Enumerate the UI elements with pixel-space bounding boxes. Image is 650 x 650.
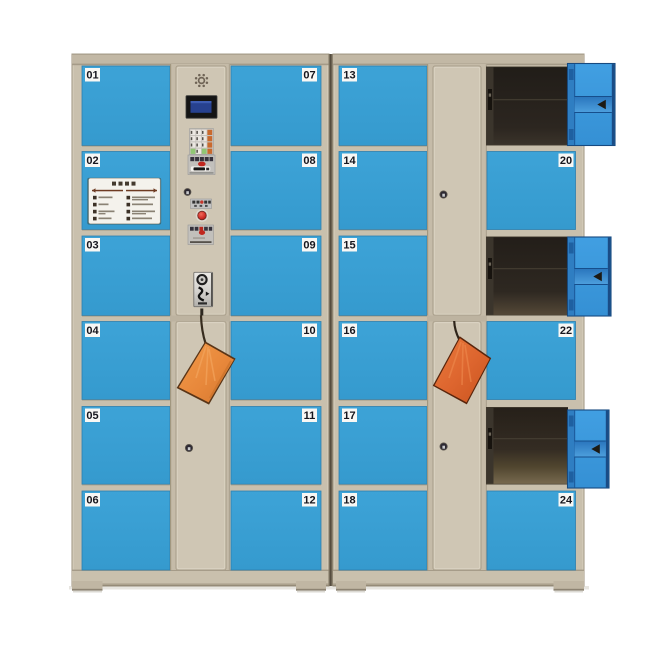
svg-text:16: 16 xyxy=(343,325,355,337)
svg-text:04: 04 xyxy=(86,325,99,337)
svg-text:20: 20 xyxy=(560,155,572,167)
svg-text:15: 15 xyxy=(343,240,355,252)
svg-text:10: 10 xyxy=(303,325,315,337)
svg-text:12: 12 xyxy=(303,495,315,507)
svg-text:06: 06 xyxy=(86,495,98,507)
svg-text:09: 09 xyxy=(303,240,315,252)
svg-text:07: 07 xyxy=(303,70,315,82)
svg-text:02: 02 xyxy=(86,155,98,167)
svg-text:18: 18 xyxy=(343,495,355,507)
svg-text:17: 17 xyxy=(343,410,355,422)
svg-text:24: 24 xyxy=(560,495,573,507)
svg-text:05: 05 xyxy=(86,410,98,422)
svg-text:22: 22 xyxy=(560,325,572,337)
svg-text:13: 13 xyxy=(343,70,355,82)
svg-text:03: 03 xyxy=(86,240,98,252)
svg-text:08: 08 xyxy=(303,155,315,167)
svg-text:11: 11 xyxy=(304,410,316,422)
svg-text:01: 01 xyxy=(86,70,98,82)
svg-text:14: 14 xyxy=(343,155,356,167)
